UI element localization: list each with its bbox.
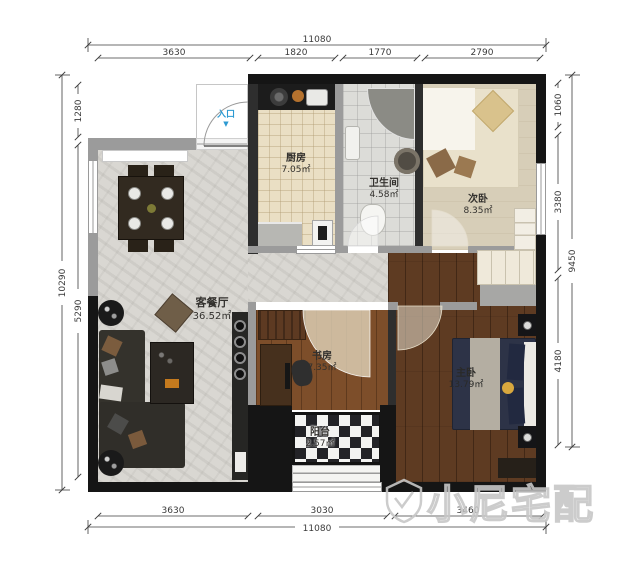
kitchen-left-wall (248, 84, 258, 254)
top-wall (248, 74, 546, 84)
floor-plan: 11080 3630 1820 1770 2790 3630 3030 3460… (0, 0, 640, 581)
corridor-wall-b (336, 246, 348, 253)
room-name: 主卧 (436, 367, 496, 380)
stove (270, 88, 288, 106)
desk (260, 344, 292, 406)
balcony-bottom-window (292, 482, 382, 492)
balcony-side-block-left (248, 405, 292, 482)
dim-bottom-total: 11080 (303, 524, 332, 534)
dim-bottom-seg: 3630 (162, 506, 185, 516)
watermark-text: 小尼宅配 (427, 472, 595, 530)
toilet (360, 204, 386, 236)
kitchen-counter (258, 84, 335, 110)
dim-right-seg: 1060 (554, 93, 564, 116)
entrance-arrow-icon: ▼ (206, 121, 246, 129)
plate (161, 187, 174, 200)
left-window (88, 160, 98, 234)
right-wall (536, 74, 546, 492)
study-wardrobe (258, 310, 306, 340)
fridge-door (318, 226, 327, 240)
side-table (98, 450, 124, 476)
room-area: 8.35㎡ (448, 206, 508, 218)
dim-top-total: 11080 (303, 35, 332, 45)
room-area: 36.52㎡ (180, 310, 244, 323)
plate (161, 217, 174, 230)
dining-chair (154, 240, 174, 252)
dim-right-seg: 4180 (554, 349, 564, 372)
plate (128, 217, 141, 230)
master-wardrobe (477, 250, 536, 285)
room-name: 客餐厅 (180, 296, 244, 310)
entry-threshold (196, 138, 248, 150)
kitchen-sink (306, 89, 328, 106)
kitchen-side-counter (258, 222, 302, 246)
living-dining-label: 客餐厅 36.52㎡ (180, 296, 244, 323)
master-top-wall-a (388, 302, 398, 310)
pot (292, 90, 304, 102)
master-top-wall-b (440, 302, 477, 310)
master-mattress-edge (524, 342, 536, 426)
coffee-table-decor (165, 379, 179, 388)
kitchen-label: 厨房 7.05㎡ (266, 152, 326, 177)
dim-top-seg: 3630 (163, 48, 186, 58)
decor-item (234, 336, 246, 348)
dim-right-total: 9450 (568, 249, 578, 272)
entrance-text: 入口 (217, 110, 235, 120)
room-name: 书房 (292, 350, 352, 363)
room-name: 卫生间 (354, 177, 414, 190)
dining-table (118, 176, 184, 240)
room-name: 次卧 (448, 193, 508, 206)
balcony-side-block-right (380, 405, 396, 482)
monitor (285, 363, 290, 389)
study-left-wall (248, 302, 256, 412)
right-window (536, 163, 546, 235)
corridor-wall-c (378, 246, 432, 253)
corridor-wall-a (248, 246, 296, 253)
dim-top-seg: 1770 (369, 48, 392, 58)
left-wall-lower (88, 296, 98, 492)
room-name: 厨房 (266, 152, 326, 165)
room-area: 7.35㎡ (292, 363, 352, 375)
window-cabinet (102, 150, 188, 162)
secondary-bedroom-label: 次卧 8.35㎡ (448, 193, 508, 218)
room-area: 7.05㎡ (266, 165, 326, 177)
washing-machine (394, 148, 420, 174)
fridge (312, 220, 333, 246)
bathroom-sink (345, 126, 360, 160)
kitchen-bathroom-wall (335, 84, 343, 246)
bathroom-label: 卫生间 4.58㎡ (354, 177, 414, 202)
coffee-table (150, 342, 194, 404)
brand-shield-icon (384, 478, 424, 524)
lamp (523, 433, 532, 442)
room-area: 4.58㎡ (354, 190, 414, 202)
accent-pillow (502, 382, 514, 394)
dining-chair (128, 240, 148, 252)
dim-top-seg: 1820 (285, 48, 308, 58)
dim-left-seg: 5290 (74, 299, 84, 322)
dim-left-seg: 1280 (74, 99, 84, 122)
decor-item (234, 368, 246, 380)
tv-niche (235, 452, 246, 472)
watermark: 小尼宅配 (384, 472, 595, 530)
room-area: 2.57㎡ (296, 439, 344, 451)
balcony-label: 阳台 2.57㎡ (296, 426, 344, 451)
nightstand (518, 314, 536, 336)
master-closet-mat (480, 285, 536, 306)
sofa-throw (99, 385, 123, 402)
balcony-sill (292, 465, 382, 482)
centerpiece (147, 204, 156, 213)
study-label: 书房 7.35㎡ (292, 350, 352, 375)
plate (128, 187, 141, 200)
dim-right-seg: 3380 (554, 190, 564, 213)
tv-cabinet (232, 312, 248, 480)
secondary-dresser (514, 208, 536, 250)
decor-item (234, 352, 246, 364)
lamp (523, 321, 532, 330)
kitchen-sliding-door (296, 245, 336, 254)
room-area: 13.79㎡ (436, 380, 496, 392)
entrance-label: 入口 ▼ (206, 111, 246, 129)
dim-left-total: 10290 (58, 268, 68, 297)
master-bedroom-label: 主卧 13.79㎡ (436, 367, 496, 392)
dim-bottom-seg: 3030 (311, 506, 334, 516)
dim-top-seg: 2790 (471, 48, 494, 58)
side-table (98, 300, 124, 326)
bed-pillow (507, 343, 525, 380)
room-name: 阳台 (296, 426, 344, 439)
secondary-bed-sheet (423, 88, 475, 150)
nightstand (518, 426, 536, 448)
